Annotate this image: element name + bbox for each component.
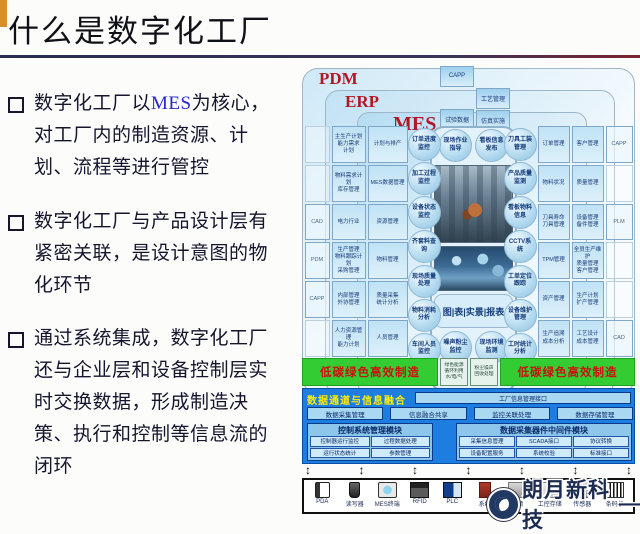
top-cell: CAPP: [440, 66, 474, 87]
right-mes-column: 订单管理物料状况刀具寿命 刀具管理TPM管理资产管理生产追溯 成本分析: [537, 125, 570, 358]
square-bullet-icon: [8, 215, 24, 231]
channel-row: 数据采集管理信息融合共享监控关联处理数据存储管理: [307, 407, 633, 420]
device-item: RFID: [405, 482, 435, 505]
erp-function-cell: 设备管理 备件管理: [572, 204, 604, 241]
pdm-function-cell: [606, 242, 633, 279]
device-item: PDA: [307, 482, 337, 505]
left-mes-column: 计划与排产MES数据管理资源管理物料管理质量采集 统计分析人员管理: [367, 125, 408, 358]
device-item: PLC: [437, 482, 467, 505]
pda-icon: [315, 482, 330, 498]
mes-function-cell: 质量采集 统计分析: [368, 281, 408, 318]
mes-terminal-icon: [378, 482, 397, 498]
erp-function-cell: 客户管理: [572, 126, 604, 163]
module-grid: 采集信息管理SCADA接口协议转换设备配置服务系统校验标准接口: [459, 436, 629, 458]
mes-function-cell: 订单管理: [538, 126, 570, 163]
pdm-function-cell: CAPP: [606, 126, 633, 163]
erp-function-cell: 电力行业: [332, 204, 366, 241]
erp-function-cell: 工艺设计 成本管理: [572, 320, 604, 357]
green-banner-left: 低碳绿色高效制造: [302, 358, 438, 386]
channel-cell: 信息融合共享: [390, 407, 466, 420]
mes-function-cell: 物料状况: [538, 165, 570, 202]
channel-cell: 数据采集管理: [307, 407, 383, 420]
right-bubble-column: 刀具工装管理产品质量监测看板物料信息CCTV系统工单定位跟踪设备维护管理工时统计…: [503, 128, 537, 366]
double-arrow-icon: ↕: [359, 463, 365, 477]
title-divider: [0, 55, 640, 58]
module-cell: 运行状态统计: [310, 448, 370, 459]
square-bullet-icon: [8, 332, 24, 348]
pdm-function-cell: [606, 281, 633, 318]
module-cell: 采集信息管理: [459, 436, 515, 447]
module-cell: SCADA接口: [516, 436, 572, 447]
device-label: PLC: [437, 499, 467, 505]
monitoring-bubble: 物料消耗分析: [408, 299, 441, 332]
plc-icon: [443, 482, 462, 498]
panel-header-label: 数据通道与信息融合: [307, 392, 406, 407]
mes-function-cell: 刀具寿命 刀具管理: [538, 204, 570, 241]
device-label: RFID: [405, 499, 435, 505]
erp-function-cell: 物料需求计划 库存管理: [332, 165, 366, 202]
monitoring-bubble: 齐套料查询: [408, 230, 441, 263]
machining-photo: [434, 165, 513, 243]
digital-factory-diagram: PDM ERP MES CAPP试验数据 工艺管理仿真实施 CADPDMCAPP…: [297, 60, 640, 514]
module-cell: 系统校验: [516, 448, 572, 459]
data-acquisition-module: 数据采集器件中间件模块 采集信息管理SCADA接口协议转换设备配置服务系统校验标…: [456, 423, 632, 461]
monitoring-bubble: 订单进度监控: [408, 128, 441, 161]
module-cell: 参数管理: [371, 448, 431, 459]
pdm-function-cell: [305, 126, 330, 163]
pdm-function-cell: CAPP: [305, 281, 330, 318]
monitoring-bubble: 工单定位跟踪: [504, 265, 537, 298]
right-outer-column: CAPPPLMCAD: [605, 125, 633, 358]
card-reader-icon: [349, 482, 360, 498]
top-column-b: 工艺管理仿真实施: [476, 65, 510, 131]
bullet-text: 数字化工厂与产品设计层有紧密关联，是设计意图的物化环节: [34, 206, 276, 302]
control-system-module: 控制系统管理模块 控制器运行监控过程数据处理运行状态统计参数管理: [307, 423, 433, 461]
left-bubble-column: 订单进度监控加工过程监控设备状态监控齐套料查询现场质量处理物料消耗分析车间人员监…: [407, 128, 441, 366]
module-cell: 协议转换: [573, 436, 629, 447]
erp-function-cell: 生产管理 物料跟踪计划 采购管理: [332, 242, 366, 279]
monitoring-bubble: 现场作业指导: [439, 129, 472, 162]
top-bubble-row: 现场作业指导看板信息发布: [439, 129, 508, 162]
top-column-a: CAPP试验数据: [440, 65, 474, 131]
device-item: 读写器: [340, 482, 370, 508]
module-cell: 设备配置服务: [459, 448, 515, 459]
watermark-text: 朗月新科技: [522, 474, 619, 534]
right-erp-column: 客户管理质量管理设备管理 备件管理全员生产维护 质量管理 客户管理生产计划 扩产…: [571, 125, 604, 358]
module-title: 数据采集器件中间件模块: [459, 425, 629, 436]
module-title: 控制系统管理模块: [310, 425, 430, 436]
double-arrow-icon: ↕: [466, 463, 472, 477]
module-cell: 过程数据处理: [371, 436, 431, 447]
bullet-item-1: 数字化工厂以MES为核心，对工厂内的制造资源、计划、流程等进行管控: [8, 88, 294, 184]
erp-function-cell: 质量管理: [572, 165, 604, 202]
monitoring-bubble: 设备维护管理: [504, 299, 537, 332]
green-mid-box-2: 粉尘噪声 回收处理: [470, 358, 498, 386]
mes-keyword: MES: [151, 93, 192, 114]
pdm-function-cell: [606, 165, 633, 202]
bullet-item-2: 数字化工厂与产品设计层有紧密关联，是设计意图的物化环节: [8, 206, 294, 302]
pdm-function-cell: [305, 165, 330, 202]
mes-function-cell: 生产追溯 成本分析: [538, 320, 570, 357]
erp-function-cell: 人力资源管理 能力计划: [332, 320, 366, 357]
erp-ring-label: ERP: [345, 92, 379, 112]
rfid-icon: [410, 482, 429, 498]
bullet-item-3: 通过系统集成，数字化工厂还与企业层和设备控制层实时交换数据，形成制造决策、执行和…: [8, 323, 294, 483]
monitoring-bubble: 刀具工装管理: [504, 128, 537, 161]
erp-function-cell: 生产计划 扩产管理: [572, 281, 604, 318]
pdm-function-cell: CAD: [606, 320, 633, 357]
mes-function-cell: 人员管理: [368, 320, 408, 357]
erp-function-cell: 内部管理 外协管理: [332, 281, 366, 318]
control-room-photo: [434, 246, 513, 291]
double-arrow-icon: ↕: [412, 463, 418, 477]
mes-function-cell: 资源管理: [368, 204, 408, 241]
watermark: 朗月新科技 —: [487, 474, 640, 534]
device-label: PDA: [307, 499, 337, 505]
mes-function-cell: 物料管理: [368, 242, 408, 279]
channel-cell: 监控关联处理: [474, 407, 550, 420]
channel-cell: 数据存储管理: [557, 407, 633, 420]
square-bullet-icon: [8, 97, 24, 113]
pdm-function-cell: PLM: [606, 204, 633, 241]
mes-function-cell: TPM管理: [538, 242, 570, 279]
watermark-dash: —: [619, 492, 640, 516]
bullet-text: 数字化工厂以MES为核心，对工厂内的制造资源、计划、流程等进行管控: [34, 88, 276, 184]
monitoring-bubble: CCTV系统: [504, 230, 537, 263]
bullet-text-pre: 数字化工厂以: [34, 93, 151, 114]
crescent-icon: [495, 497, 509, 511]
pdm-ring-label: PDM: [319, 69, 358, 89]
page-title: 什么是数字化工厂: [8, 6, 272, 51]
double-arrow-icon: ↕: [305, 463, 311, 477]
device-label: 读写器: [340, 499, 370, 508]
monitoring-bubble: 看板物料信息: [504, 196, 537, 229]
slide-accent-mark: [0, 0, 7, 27]
erp-function-cell: 主生产计划 能力需求 计划: [332, 126, 366, 163]
module-cell: 标准接口: [573, 448, 629, 459]
pdm-function-cell: [305, 320, 330, 357]
monitoring-bubble: 加工过程监控: [408, 162, 441, 195]
moon-logo-icon: [487, 488, 520, 521]
green-mid-box-1: 绿色能源 循环利用 水/电/气: [440, 358, 468, 386]
top-cell: 工艺管理: [476, 88, 510, 109]
center-caption: 图|表|实景|报表: [434, 294, 513, 328]
device-item: MES终端: [372, 482, 402, 508]
monitoring-bubble: 产品质量监测: [504, 162, 537, 195]
device-label: MES终端: [372, 499, 402, 508]
left-erp-column: 主生产计划 能力需求 计划物料需求计划 库存管理电力行业生产管理 物料跟踪计划 …: [331, 125, 366, 358]
pdm-function-cell: CAD: [305, 204, 330, 241]
monitoring-bubble: 现场质量处理: [408, 265, 441, 298]
pdm-function-cell: PDM: [305, 242, 330, 279]
bullet-text: 通过系统集成，数字化工厂还与企业层和设备控制层实时交换数据，形成制造决策、执行和…: [34, 323, 276, 483]
left-outer-column: CADPDMCAPP: [304, 125, 330, 358]
data-channel-panel: 数据通道与信息融合 工厂信息管理接口 数据采集管理信息融合共享监控关联处理数据存…: [302, 388, 635, 464]
erp-function-cell: 全员生产维护 质量管理 客户管理: [572, 242, 604, 279]
bullet-list: 数字化工厂以MES为核心，对工厂内的制造资源、计划、流程等进行管控 数字化工厂与…: [8, 88, 294, 505]
mes-function-cell: MES数据管理: [368, 165, 408, 202]
mes-function-cell: 资产管理: [538, 281, 570, 318]
module-cell: 控制器运行监控: [310, 436, 370, 447]
green-banner-right: 低碳绿色高效制造: [500, 358, 635, 386]
monitoring-bubble: 设备状态监控: [408, 196, 441, 229]
factory-info-interface-box: 工厂信息管理接口: [415, 392, 631, 404]
module-grid: 控制器运行监控过程数据处理运行状态统计参数管理: [310, 436, 430, 458]
mes-function-cell: 计划与排产: [368, 126, 408, 163]
